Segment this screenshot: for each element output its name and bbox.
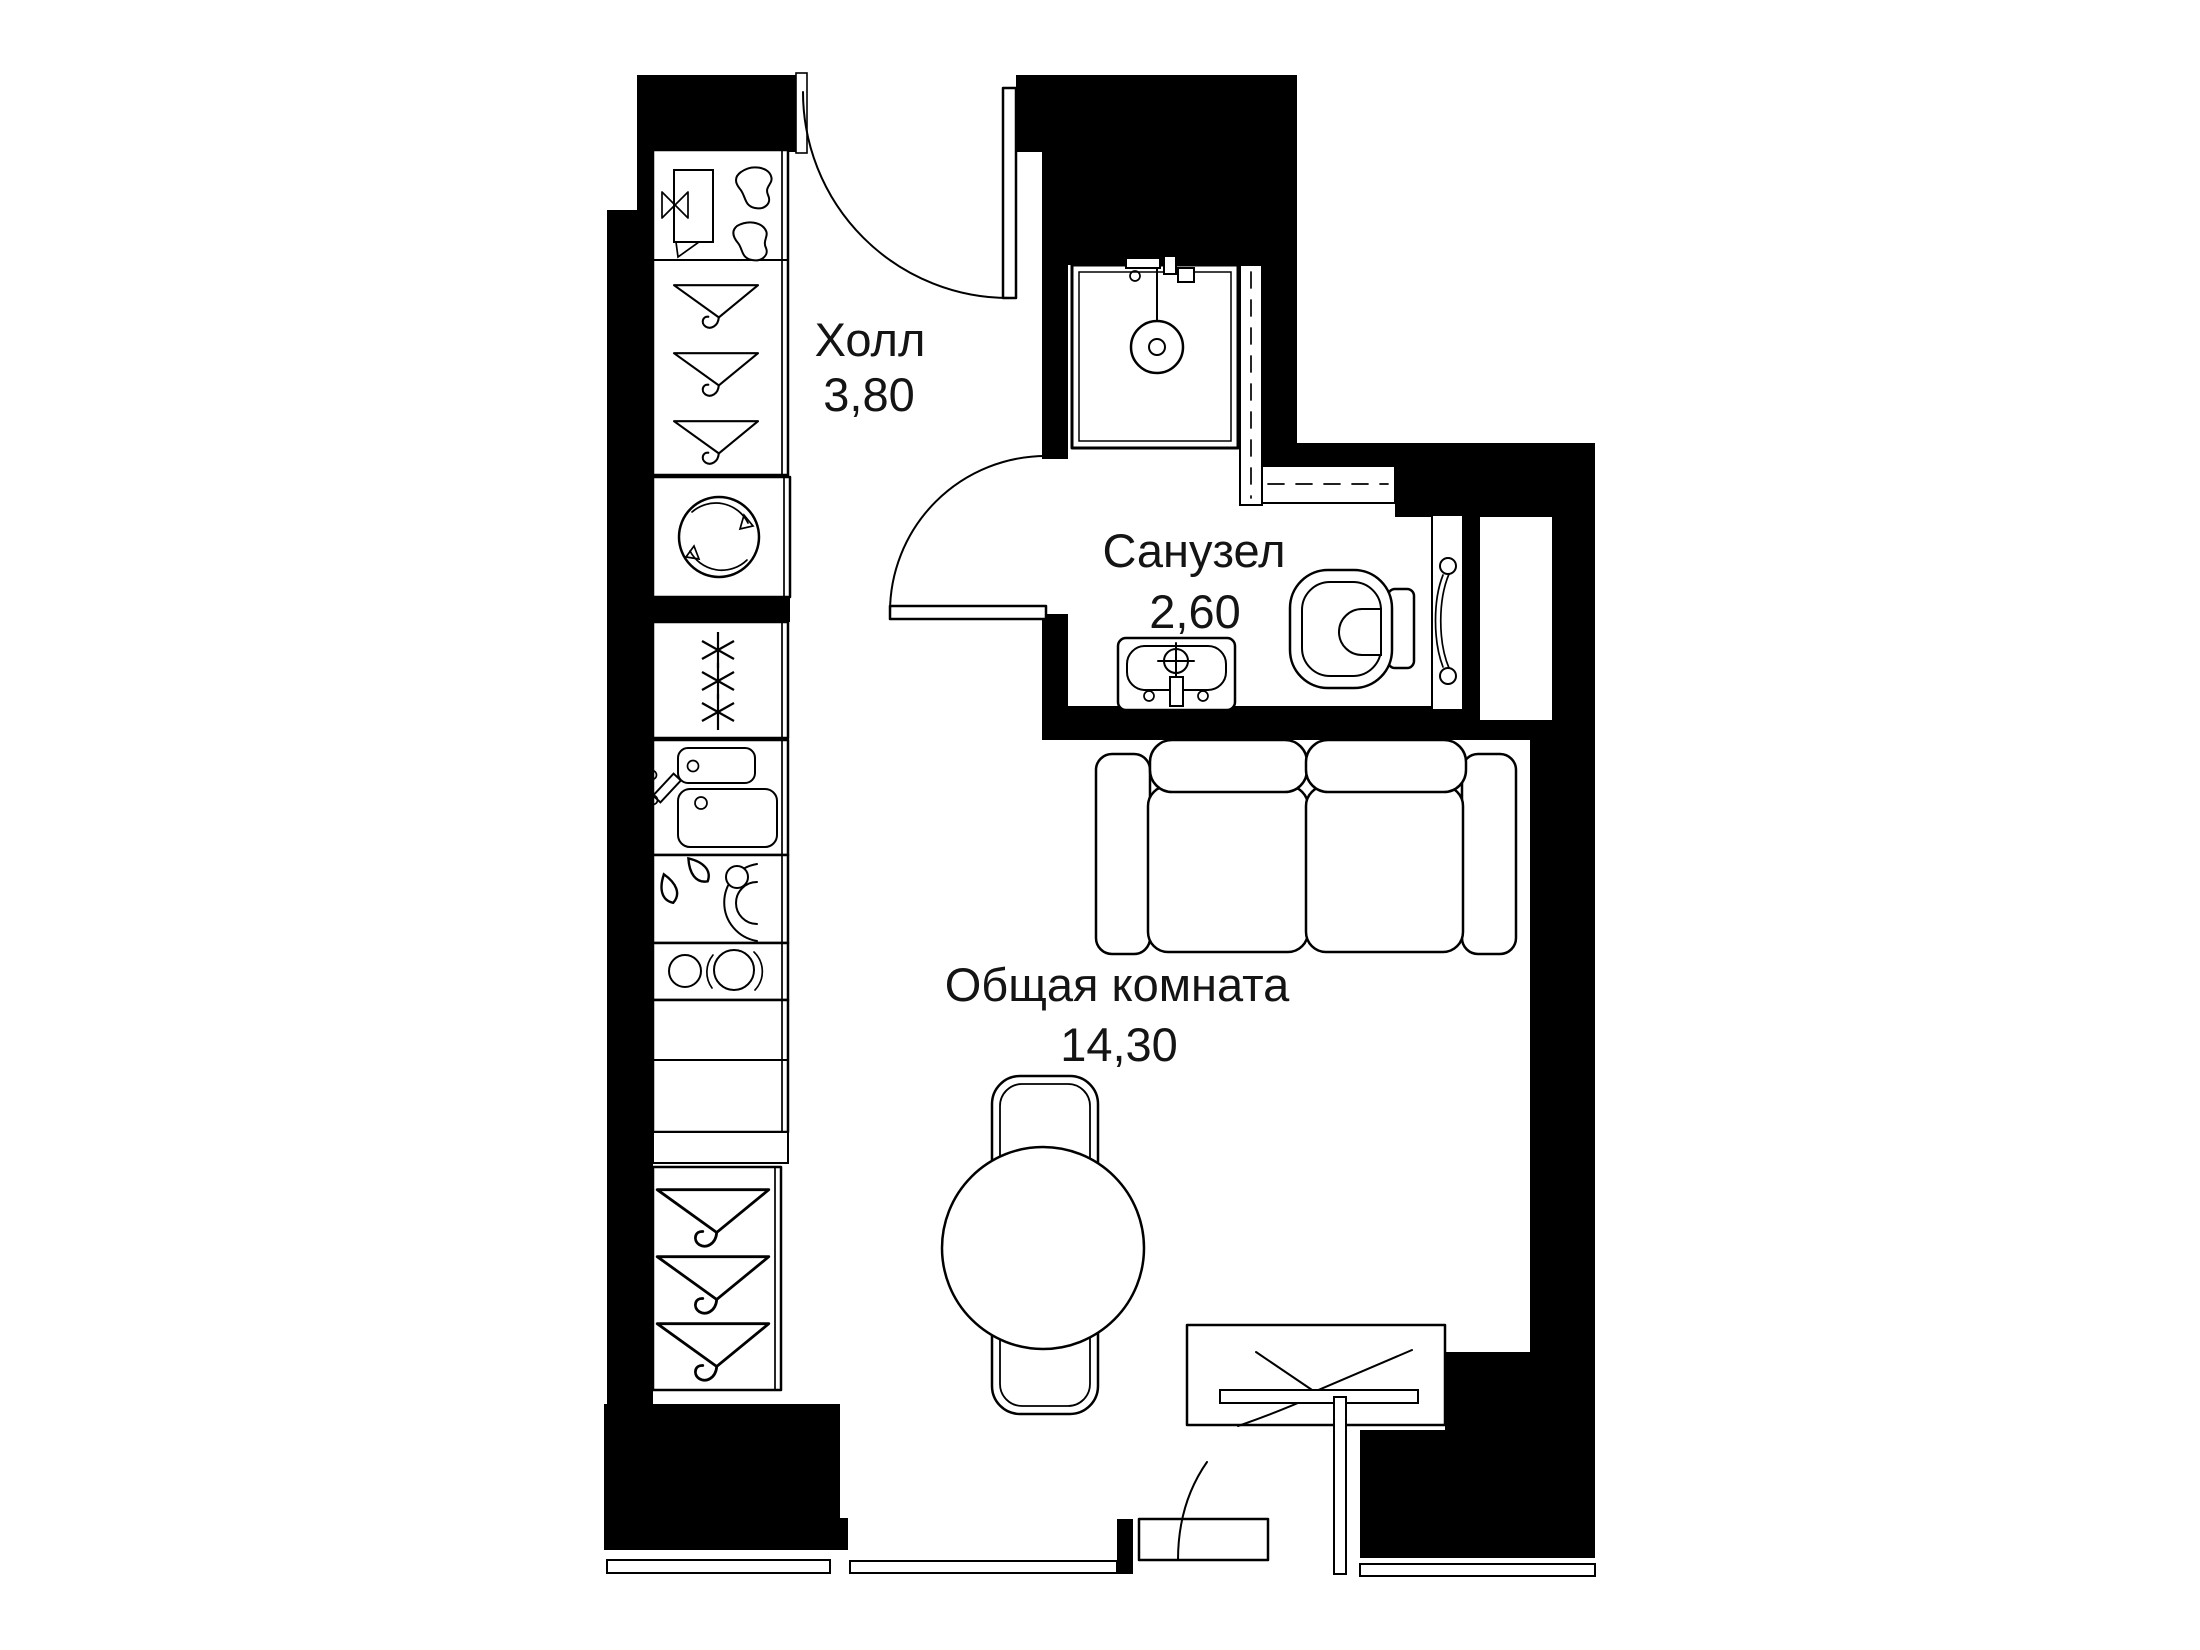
refrigerator <box>653 622 788 738</box>
wall-kitchen-band <box>652 598 790 622</box>
dining-table <box>942 1147 1144 1349</box>
hall-wardrobe <box>653 150 788 475</box>
burner-icon <box>669 955 701 987</box>
window <box>850 1561 1117 1573</box>
sofa-back-cushion <box>1306 740 1466 792</box>
cabinet-shelf <box>653 1132 788 1163</box>
sofa-seat <box>1148 786 1308 952</box>
burner-icon <box>714 950 754 990</box>
washbasin <box>1118 638 1235 710</box>
wall-bath-top-band <box>1262 443 1595 466</box>
window-sill-right <box>1360 1564 1595 1576</box>
wall-corner-bottom-left <box>604 1404 840 1550</box>
shaft-niche <box>1480 517 1552 720</box>
sofa-back-cushion <box>1150 740 1307 792</box>
kitchen-cabinet <box>653 1000 788 1163</box>
sink-basin-large <box>678 789 777 847</box>
wall-top-left <box>637 75 797 152</box>
sofa-seat <box>1306 786 1463 952</box>
shoe-cabinet <box>674 170 713 242</box>
kitchen-sink <box>648 740 789 855</box>
desk-top <box>1187 1325 1445 1425</box>
washing-machine <box>653 477 790 597</box>
desk <box>1187 1325 1445 1426</box>
wall-hall-bath <box>1042 152 1068 459</box>
towel-rail <box>1432 515 1463 710</box>
entrance-jamb <box>796 73 807 153</box>
wall-corner-bottom-right <box>1360 1430 1595 1558</box>
room-area-living: 14,30 <box>1060 1018 1178 1071</box>
wall-left-outer <box>607 210 637 1404</box>
desk-shelf <box>1220 1390 1418 1403</box>
sofa-armrest-right <box>1462 754 1516 954</box>
towel-rail-end <box>1440 668 1456 684</box>
shower-bar <box>1126 258 1160 268</box>
balcony-door-frame <box>1334 1397 1346 1574</box>
wall-corner-step <box>1445 1352 1595 1430</box>
floor-plan-page: Холл 3,80 Санузел 2,60 Общая комната 14,… <box>0 0 2200 1650</box>
floor-plan: Холл 3,80 Санузел 2,60 Общая комната 14,… <box>0 0 2200 1650</box>
dishwasher <box>653 854 788 943</box>
bathroom-door-leaf <box>890 606 1046 619</box>
lower-wardrobe <box>653 1167 781 1390</box>
wall-step-bottom <box>840 1518 848 1550</box>
window-sill-left <box>607 1560 830 1573</box>
wall-left-inner <box>637 150 653 1404</box>
entrance-door-leaf <box>1003 88 1016 298</box>
washbasin-tap <box>1170 677 1183 706</box>
dishwasher-box <box>653 855 788 943</box>
cooktop <box>653 943 788 1000</box>
room-label-bathroom: Санузел <box>1102 524 1285 577</box>
plate-circle <box>726 866 748 888</box>
shower-mixer <box>1164 256 1176 274</box>
shower-hand-unit <box>1178 268 1194 282</box>
shower-cabin <box>1072 256 1238 448</box>
room-label-living: Общая комната <box>945 958 1290 1011</box>
shower-head-center <box>1149 339 1165 355</box>
room-area-hall: 3,80 <box>823 368 914 421</box>
room-label-hall: Холл <box>815 313 926 366</box>
sofa <box>1096 740 1516 954</box>
washing-machine-drum <box>679 497 759 577</box>
sofa-armrest-left <box>1096 754 1150 954</box>
toilet-flush <box>1339 609 1381 655</box>
cabinet-box <box>653 1000 788 1132</box>
room-area-bathroom: 2,60 <box>1149 585 1240 638</box>
wall-balcony-pillar <box>1117 1519 1133 1574</box>
sink-basin-small <box>678 748 755 783</box>
towel-rail-end <box>1440 558 1456 574</box>
balcony-door-leaf <box>1139 1519 1268 1560</box>
